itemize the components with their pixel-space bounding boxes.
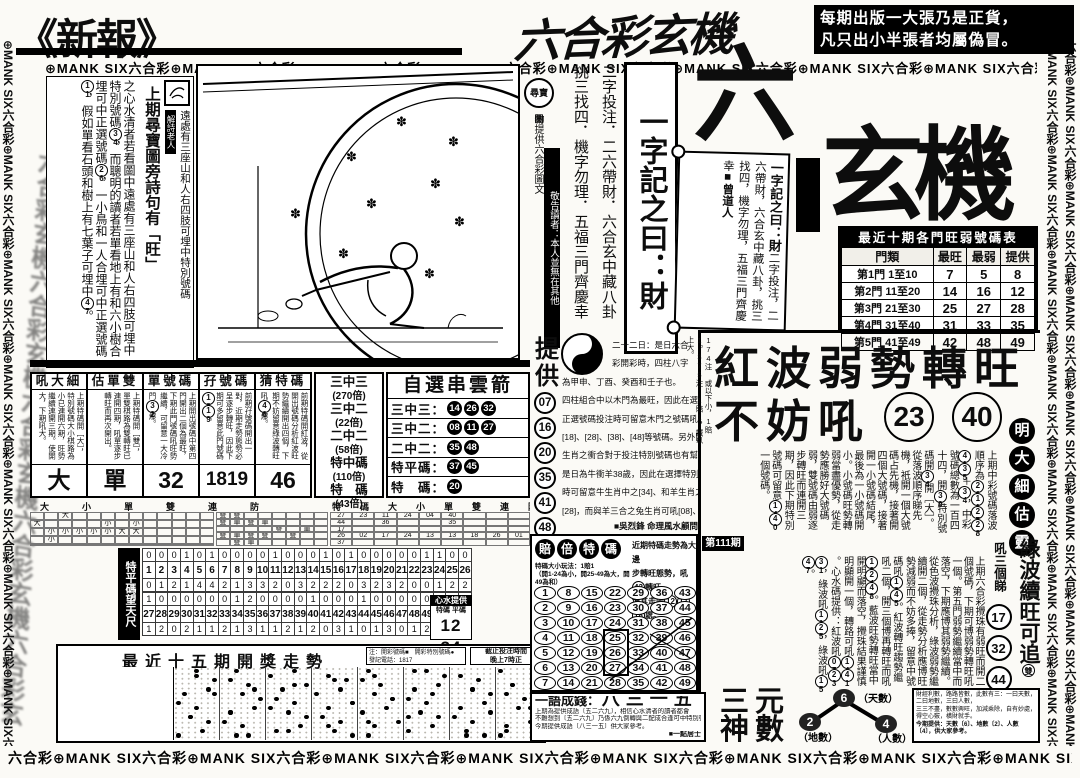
freq-cell: 1 (206, 623, 219, 636)
headline-line1: 紅波弱勢轉旺 (714, 332, 1040, 386)
logo-rule (16, 48, 462, 55)
freq-cell: 0 (143, 549, 156, 562)
freq-cell: 1 (408, 623, 421, 636)
record-cell (87, 536, 101, 544)
sanyuan-title: 三元 神數 (712, 688, 798, 744)
record-cell (463, 539, 485, 546)
scroll-signature: ■曾道人 (721, 171, 734, 218)
circled-number: 35 (534, 467, 556, 489)
estimate-badge-char: 估 (1009, 502, 1035, 528)
record-cell (72, 536, 86, 544)
record-cell (314, 532, 328, 539)
table-cell: 第1門 1至10 (842, 266, 934, 283)
svg-text:✽: ✽ (290, 206, 301, 221)
freq-cell: 32 (206, 606, 219, 623)
freq-cell: 0 (218, 593, 231, 606)
freq-cell: 19 (370, 562, 383, 579)
hot-weak-table-title: 最近十期各門旺弱號碼表 (841, 229, 1035, 247)
record-cell: 小 (44, 536, 58, 544)
record-cell: 單 (244, 539, 258, 546)
prediction-answer: 單 (88, 464, 142, 496)
record-cell: 小 (72, 528, 86, 536)
records-grid-numbers: 2723112404404436351726021724131318260137 (330, 512, 530, 546)
freq-cell: 4 (206, 579, 219, 592)
freq-cell: 1 (180, 549, 193, 562)
freq-cell: 0 (319, 593, 332, 606)
prediction-title: 孖號碼 (200, 374, 254, 390)
freq-cell: 2 (180, 623, 193, 636)
freq-cell: 13 (294, 562, 307, 579)
record-cell (441, 526, 463, 533)
record-cell: 單 (300, 526, 314, 533)
authenticity-notice: 每期出版一大張乃是正貨， 凡只出小半張者均屬偽冒。 (814, 5, 1074, 54)
freq-cell: 1 (345, 623, 358, 636)
record-cell (272, 532, 286, 539)
freq-cell: 0 (282, 593, 295, 606)
freq-cell: 0 (395, 593, 408, 606)
svg-text:✽: ✽ (454, 214, 465, 229)
circled-number: 20 (534, 442, 556, 464)
black-circle-number: 45 (464, 459, 479, 474)
freq-cell: 2 (332, 579, 345, 592)
record-cell: 27 (330, 512, 352, 519)
record-cell (258, 512, 272, 519)
record-cell (186, 544, 200, 546)
sanyuan-info2: 三三不盡，數數興旺，加減乘除，自有妙處，得空心竅，橫財就手。 (916, 707, 1036, 722)
sanyuan-title-line1: 三元 (712, 688, 798, 716)
records-grid-daxiao: 大大小小小小小小小大大小 (30, 512, 214, 546)
record-cell (272, 519, 286, 526)
idiom-phrase: 八三一五 (602, 696, 698, 708)
inline-circled-number: 32 (146, 400, 159, 413)
record-cell (286, 526, 300, 533)
blossom-icons: ✽✽✽ ✽✽✽ ✽✽✽ (290, 114, 465, 281)
freq-cell: 2 (395, 579, 408, 592)
inline-circled-number: 13 (890, 576, 903, 589)
record-cell: 44 (330, 519, 352, 526)
arrow-row: 二中二：3548 (388, 437, 528, 457)
record-cell (486, 539, 508, 546)
record-cell: 小 (87, 528, 101, 536)
freq-cell: 30 (180, 606, 193, 623)
prediction-title: 猜特碼 (256, 374, 310, 390)
inline-circled-number: 34 (958, 486, 971, 499)
freq-cell: 3 (357, 579, 370, 592)
record-cell: 40 (441, 512, 463, 519)
freq-cell: 36 (256, 606, 269, 623)
freq-cell: 1 (269, 549, 282, 562)
records-header-left: 大 小 單 雙 連 防 (40, 500, 320, 511)
freq-cell: 34 (231, 606, 244, 623)
freq-cell: 18 (357, 562, 370, 579)
record-cell: 18 (463, 532, 485, 539)
record-cell (143, 528, 157, 536)
border-strip-right-outer: ⊕MANK SIX六合彩⊕MANK SIX六合彩⊕MANK SIX六合彩⊕MAN… (1044, 40, 1061, 746)
freq-cell: 1 (433, 579, 446, 592)
freq-cell: 2 (446, 579, 459, 592)
odds-column: 三中三(270倍)三中二(22倍)二中二(58倍)特中碼(110倍)特 碼(43… (314, 372, 384, 498)
freq-block-1-26: 0001010000100010100000110012345678910111… (142, 548, 472, 592)
trend-group (312, 667, 358, 740)
idiom-title-row: 一語成錢： 八三一五 (535, 696, 701, 708)
freq-cell: 1 (294, 623, 307, 636)
freq-cell: 21 (395, 562, 408, 579)
freq-cell: 0 (395, 623, 408, 636)
record-cell (172, 544, 186, 546)
record-cell: 35 (441, 519, 463, 526)
record-cell (30, 536, 44, 544)
record-cell (115, 536, 129, 544)
scroll-line1: 一字記之曰：財 (767, 161, 784, 252)
black-circle-number: 37 (447, 459, 462, 474)
record-cell (374, 526, 396, 533)
record-cell: 單 (230, 532, 244, 539)
table-cell: 25 (933, 300, 967, 317)
scroll-curl-bottom (667, 320, 681, 334)
record-cell: 13 (419, 532, 441, 539)
freq-cell: 28 (155, 606, 168, 623)
estimate-badge-char: 細 (1009, 474, 1035, 500)
record-cell (508, 526, 530, 533)
record-cell: 雙 (216, 519, 230, 526)
prediction-note: 上期特碼開［大］，特別號碼大小棋路為小已連開六期，旺勢繼續連開三期。使開大，下期… (32, 390, 86, 464)
table-cell: 第2門 11至20 (842, 283, 934, 300)
trend-chart-box: 最近十五期開獎走勢 注：開彩號碼■ 開彩特別號碼● 發記電話：1817 截止投注… (56, 644, 546, 743)
freq-cell: 8 (231, 562, 244, 579)
freq-cell: 2 (282, 623, 295, 636)
freq-cell: 33 (218, 606, 231, 623)
black-circle-number: 32 (481, 401, 496, 416)
trend-empty-panel (60, 667, 174, 740)
freq-cell: 1 (206, 549, 219, 562)
record-cell (30, 512, 44, 520)
record-cell: 大 (129, 528, 143, 536)
record-cell (44, 544, 58, 546)
freq-cell: 7 (218, 562, 231, 579)
freq-cell: 1 (231, 623, 244, 636)
prediction-note: 上期特碼開［雙］，單雙棋路為雙轉旺已連開四期，吼單逐步轉旺而再次開出。 (88, 390, 142, 464)
freq-cell: 3 (168, 562, 181, 579)
issue-label: 第111期 (702, 536, 744, 551)
tip-box: 心水提供 特碼 平碼 12 34 (430, 595, 472, 640)
scroll-line3: 六合玄中藏八卦， (751, 207, 765, 299)
paper-logo: 《新報》 (16, 6, 266, 52)
green-wave-title: 綠波續旺可追雙 (1011, 538, 1042, 696)
freq-cell: 0 (143, 579, 156, 592)
record-cell (129, 512, 143, 520)
record-cell (352, 519, 374, 526)
prediction-box: 猜特碼前期特碼開紅波，從開出號碼分析紅波旺勢繼續開出四個，下期不妨留意綠波轉旺吼… (256, 374, 310, 496)
freq-cell: 0 (446, 549, 459, 562)
svg-text:✽: ✽ (396, 114, 407, 129)
provide-label: 提供 (532, 336, 562, 392)
treasure-map-seal-icon: 尋寶圖 (524, 78, 554, 108)
inline-circled-number: 34 (921, 470, 934, 483)
inline-circled-number: 39 (934, 490, 947, 503)
record-cell (172, 520, 186, 528)
trend-legend: 注：開彩號碼■ 開彩特別號碼● 發記電話：1817 (366, 647, 466, 665)
record-cell (216, 539, 230, 546)
freq-cell: 3 (244, 579, 257, 592)
record-cell: 13 (441, 532, 463, 539)
treasure-illustration-svg: ✽✽✽ ✽✽✽ ✽✽✽ (198, 66, 518, 358)
record-cell: 26 (486, 532, 508, 539)
board-annotation-lines (532, 536, 700, 694)
prediction-box: 吼大細上期特碼開［大］，特別號碼大小棋路為小已連開六期，旺勢繼續連開三期。使開大… (32, 374, 88, 496)
table-cell: 14 (933, 283, 967, 300)
record-cell: 小 (44, 528, 58, 536)
prediction-title: 吼大細 (32, 374, 86, 390)
record-cell (508, 512, 530, 519)
arrow-row: 特 碼：20 (388, 476, 528, 496)
freq-cell: 0 (269, 593, 282, 606)
inline-circled-number: 14 (769, 500, 782, 513)
record-cell (216, 526, 230, 533)
freq-cell: 0 (282, 549, 295, 562)
record-cell (157, 528, 171, 536)
svg-text:✽: ✽ (366, 196, 377, 211)
freq-cell: 1 (155, 579, 168, 592)
freq-cell: 1 (433, 549, 446, 562)
record-cell (200, 536, 214, 544)
freq-cell: 29 (168, 606, 181, 623)
sanyuan-title-line2: 神數 (712, 716, 798, 744)
freq-cell: 0 (345, 593, 358, 606)
inline-circled-number: 24 (865, 569, 878, 582)
record-cell (143, 536, 157, 544)
freq-cell: 0 (282, 579, 295, 592)
freq-cell: 0 (332, 549, 345, 562)
idiom-signature: ■一點居士 (535, 731, 701, 739)
freq-cell: 0 (459, 549, 472, 562)
freq-cell: 20 (383, 562, 396, 579)
record-cell: 02 (352, 532, 374, 539)
freq-cell: 1 (231, 593, 244, 606)
record-cell (186, 536, 200, 544)
heaven-label: （天數） (858, 692, 898, 705)
sanyuan-diagram: 6 2 4 （天數） （地數） （人數） (798, 686, 910, 744)
big-title-xuanji: 玄機 (822, 124, 1040, 234)
table-cell: 8 (1001, 266, 1035, 283)
black-circle-number: 48 (464, 440, 479, 455)
freq-cell: 16 (332, 562, 345, 579)
table-cell: 門類 (842, 248, 934, 266)
record-cell (58, 520, 72, 528)
freq-cell: 1 (345, 549, 358, 562)
tip-cols: 特碼 平碼 (431, 606, 471, 615)
freq-cell: 48 (408, 606, 421, 623)
freq-cell: 0 (307, 549, 320, 562)
prediction-title: 估單雙 (88, 374, 142, 390)
freq-cell: 4 (180, 562, 193, 579)
text-line: 不難想到〔五二六九〕乃係六九倒轉與二配成合逢可中特別號碼〔34〕 (535, 715, 701, 723)
black-circle-number: 20 (447, 479, 462, 494)
prediction-note: 前期特碼開紅波，從開出號碼分析紅波旺勢繼續開出四個，下期不妨留意綠波轉旺吼46爆… (256, 390, 310, 464)
inline-circled-number: 48 (865, 582, 878, 595)
poem-column-bet: 二字投注．二六帶財．六合玄中藏八卦 (594, 64, 620, 354)
record-cell: 大 (115, 528, 129, 536)
prediction-note: 上期開出號碼中第四門開出二個為最旺，下期此門號碼吼旺勢繼續，可留意一大冷門32爆… (144, 390, 198, 464)
freq-cell: 3 (256, 579, 269, 592)
record-cell (463, 526, 485, 533)
text-line: 為甲申、丁酉、癸酉和壬子也。 (562, 373, 698, 391)
tip-title: 心水提供 (431, 596, 471, 606)
record-cell (286, 519, 300, 526)
border-strip-right-inner: 六合彩⊕MANK SIX六合彩⊕MANK SIX六合彩⊕MANK SIX六合彩⊕… (1062, 40, 1079, 746)
human-number: 4 (883, 717, 890, 731)
black-circle-number: 11 (464, 420, 479, 435)
reader-notice-bar: 敬告讀者：本人並無在其他 (544, 148, 560, 348)
record-cell (463, 512, 485, 519)
table-cell: 27 (967, 300, 1001, 317)
record-cell: 24 (397, 512, 419, 519)
table-cell: 7 (933, 266, 967, 283)
freq-cell: 47 (395, 606, 408, 623)
freq-cell: 22 (408, 562, 421, 579)
trend-legend-line2: 發記電話：1817 (369, 657, 463, 665)
record-cell: 37 (330, 539, 352, 546)
record-cell (157, 520, 171, 528)
trend-legend-line1: 注：開彩號碼■ 開彩特別號碼● (369, 649, 463, 657)
payout-box: 賠倍特碼 特碼大小玩法：1賠1 （開1-24為小，開25-49為大，開49為和）… (530, 534, 698, 692)
freq-cell: 0 (383, 593, 396, 606)
table-cell: 5 (967, 266, 1001, 283)
freq-cell: 0 (332, 593, 345, 606)
inline-circled-number: 41 (841, 669, 854, 682)
inline-circled-number: 11 (971, 493, 984, 506)
freq-cell: 0 (408, 593, 421, 606)
record-cell (272, 539, 286, 546)
inline-circled-number: 07 (828, 656, 841, 669)
odds-item: 特中碼(110倍) (316, 457, 382, 484)
record-cell (87, 520, 101, 528)
record-cell: 23 (352, 512, 374, 519)
headline-side-note: 174注 或以下小，1賠1。375注 1賠1，誠以上大。 (700, 336, 713, 446)
record-cell: 小 (129, 520, 143, 528)
freq-cell: 0 (357, 549, 370, 562)
text-line: 上期為提供成語〔五二六九〕，相信心水清者的讀者都會 (535, 708, 701, 716)
inline-circled-number: 27 (971, 506, 984, 519)
record-cell (44, 520, 58, 528)
newspaper-page: ⊕MANK SIX六合彩⊕MANK SIX六合彩⊕MANK SIX六合彩⊕MAN… (0, 0, 1080, 778)
inline-circled-number: 46 (258, 400, 271, 413)
freq-cell: 15 (319, 562, 332, 579)
table-cell: 提供 (1001, 248, 1035, 266)
record-cell (72, 544, 86, 546)
black-circle-number: 35 (447, 440, 462, 455)
record-cell (143, 512, 157, 520)
record-cell (200, 544, 214, 546)
circled-number: 32 (986, 635, 1012, 661)
freq-cell: 1 (231, 579, 244, 592)
inline-circled-number: 47 (81, 297, 94, 310)
freq-cell: 42 (332, 606, 345, 623)
freq-cell: 4 (193, 579, 206, 592)
record-cell (314, 526, 328, 533)
left-article-lead: 上期尋寶圖旁詩句有「旺」 (138, 86, 162, 360)
border-strip-bottom: 六合彩⊕MANK SIX六合彩⊕MANK SIX六合彩⊕MANK SIX六合彩⊕… (8, 748, 1072, 768)
record-cell (30, 544, 44, 546)
record-cell (397, 519, 419, 526)
circled-number: 07 (534, 392, 556, 414)
freq-cell: 2 (218, 623, 231, 636)
sanyuan-info3: 今期提供：天數〔6〕、地數〔2〕、人數〔4〕，供大家參考。 (916, 722, 1036, 737)
record-cell (87, 512, 101, 520)
arrow-box: 自選串雲箭 三中三：142632三中二：081127二中二：3548特平碼：37… (386, 372, 530, 498)
text-line: [28]，而與羊三合之兔生肖可吼[08]、[43] (562, 502, 698, 520)
freq-cell: 31 (193, 606, 206, 623)
record-cell (44, 512, 58, 520)
inline-circled-number: 11 (81, 80, 94, 93)
record-cell (200, 512, 214, 520)
big-six-character: 六 (686, 46, 804, 150)
record-cell (300, 539, 314, 546)
freq-cell: 0 (155, 593, 168, 606)
record-cell: 雙 (216, 512, 230, 519)
table-cell: 12 (1001, 283, 1035, 300)
inline-circled-number: 34 (109, 128, 122, 141)
text-line: 生肖之衝合對于投注特別號碼也有幫助， (562, 446, 698, 464)
human-label: （人數） (872, 732, 910, 744)
freq-cell: 0 (168, 623, 181, 636)
record-cell (143, 520, 157, 528)
record-cell (101, 512, 115, 520)
freq-cell: 0 (206, 593, 219, 606)
freq-cell: 1 (307, 593, 320, 606)
trend-group (404, 667, 450, 740)
trend-group (266, 667, 312, 740)
hot-weak-table-box: 最近十期各門旺弱號碼表 門類最旺最弱提供第1門 1至10758第2門 11至20… (838, 226, 1038, 332)
text-line: 正選號碼投注時可留意木門之號碼吼[08] (562, 410, 698, 428)
arrow-row: 特平碼：3745 (388, 457, 528, 477)
record-cell: 雙 (286, 532, 300, 539)
records-header-right: 特 碼 大 小 單 雙 連 防 (332, 500, 530, 511)
record-cell (300, 512, 314, 519)
record-cell (129, 536, 143, 544)
trend-group (450, 667, 496, 740)
record-cell (87, 544, 101, 546)
freq-cell: 43 (345, 606, 358, 623)
record-cell (186, 512, 200, 520)
prediction-boxes: 吼大細上期特碼開［大］，特別號碼大小棋路為小已連開六期，旺勢繼續連開三期。使開大… (30, 372, 312, 498)
headline-line2: 不妨吼 23 40 (714, 388, 1040, 446)
record-cell (58, 536, 72, 544)
record-cell (58, 544, 72, 546)
heaven-number: 6 (841, 691, 848, 705)
black-circle-number: 08 (447, 420, 462, 435)
record-cell: 36 (374, 519, 396, 526)
record-cell (143, 544, 157, 546)
earth-label: （地數） (798, 731, 838, 744)
record-cell (397, 539, 419, 546)
motto-box: 一字記之曰：財 (624, 62, 678, 354)
freq-cell: 14 (307, 562, 320, 579)
record-cell (486, 512, 508, 519)
freq-cell: 45 (370, 606, 383, 623)
circled-number: 41 (534, 492, 556, 514)
record-cell: 單 (230, 519, 244, 526)
freq-cell: 25 (446, 562, 459, 579)
watch-label: 吼三個睇 (988, 542, 1007, 602)
inline-circled-number: 35 (958, 463, 971, 476)
inline-circled-number: 47 (802, 556, 815, 569)
freq-cell: 0 (319, 623, 332, 636)
freq-cell: 41 (319, 606, 332, 623)
freq-cell: 38 (282, 606, 295, 623)
freq-cell: 1 (319, 549, 332, 562)
prediction-box: 孖號碼前期孖號碼開出一對，近期走勢態勢必呈逐步轉旺，因此下期可多留意此門號碼18… (200, 374, 256, 496)
seal-caption: 解詩老人 (165, 110, 176, 154)
